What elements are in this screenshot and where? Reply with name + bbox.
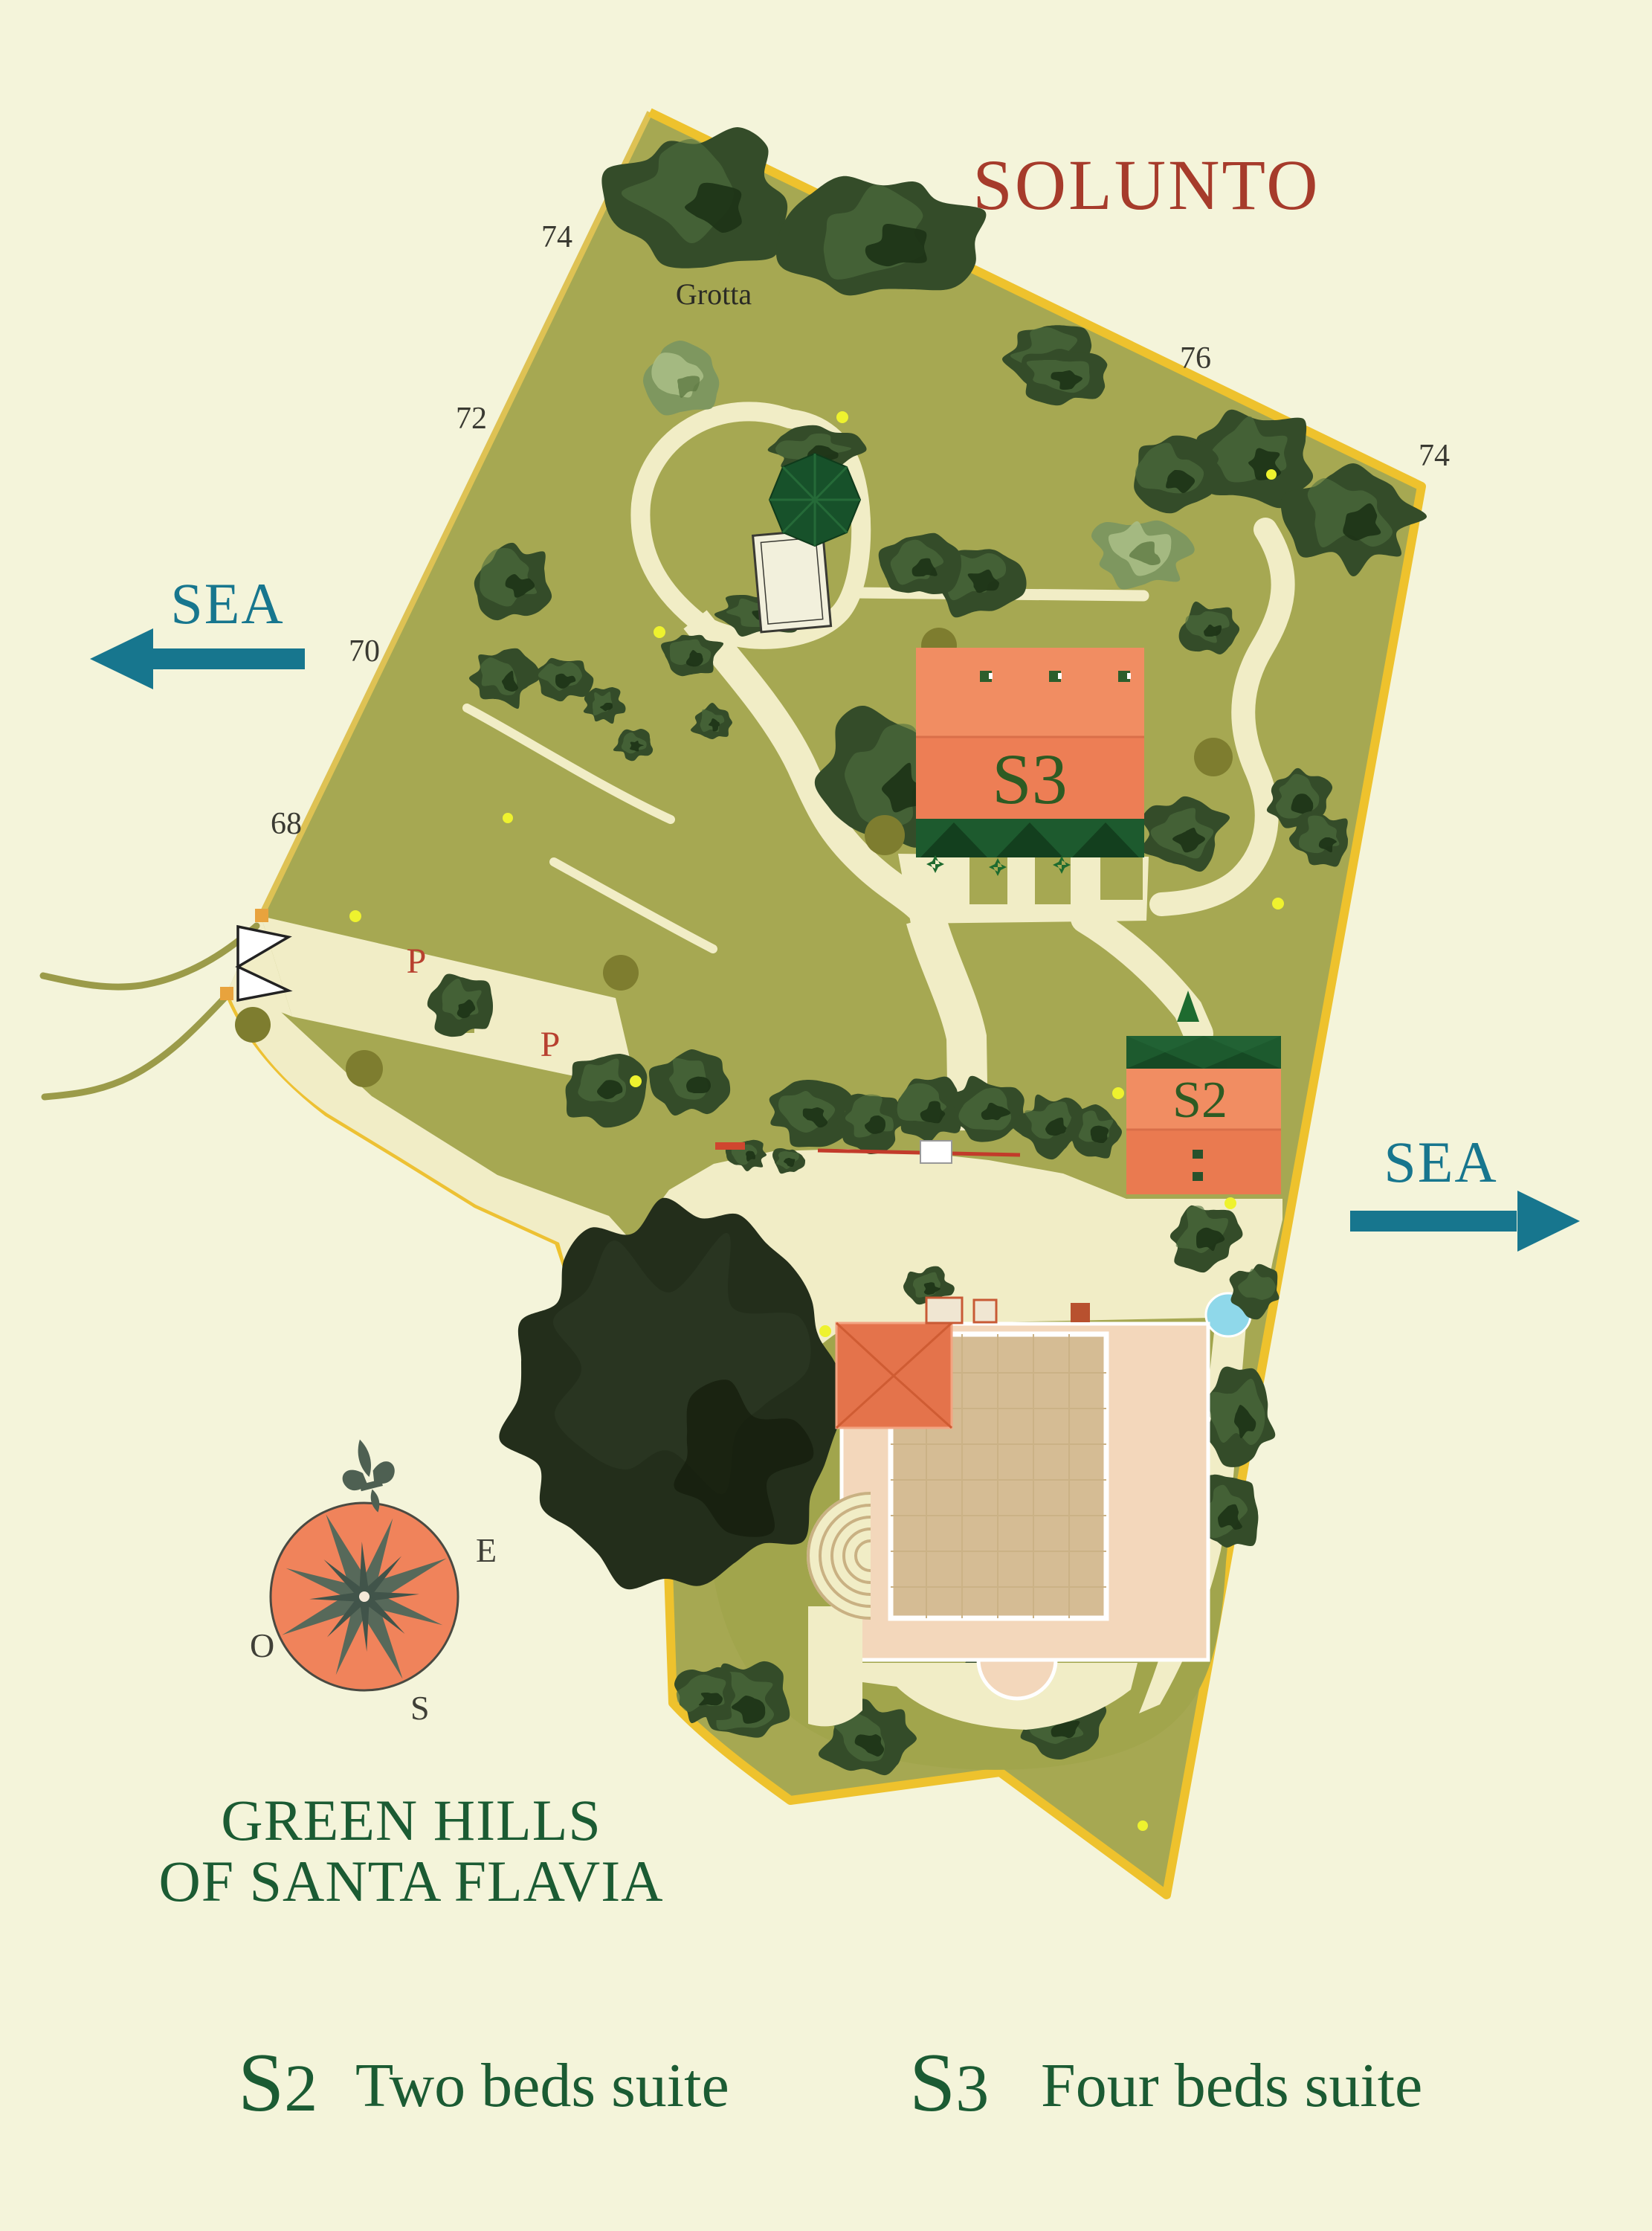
svg-text:S3: S3 — [992, 739, 1067, 819]
svg-text:P: P — [407, 941, 427, 981]
svg-text:76: 76 — [1180, 341, 1211, 376]
svg-text:S2: S2 — [1172, 1072, 1227, 1129]
svg-text:E: E — [476, 1531, 497, 1569]
svg-text:SOLUNTO: SOLUNTO — [972, 145, 1320, 225]
svg-text:72: 72 — [456, 402, 487, 436]
svg-text:70: 70 — [349, 634, 380, 669]
svg-text:SEA: SEA — [170, 571, 284, 636]
svg-text:74: 74 — [1419, 439, 1450, 473]
svg-text:S: S — [410, 1689, 430, 1727]
svg-text:P: P — [541, 1025, 561, 1064]
svg-text:SEA: SEA — [1384, 1130, 1497, 1194]
svg-text:Two beds suite: Two beds suite — [355, 2051, 729, 2120]
svg-text:74: 74 — [541, 220, 572, 254]
svg-text:68: 68 — [271, 807, 302, 841]
svg-text:O: O — [250, 1626, 274, 1664]
svg-text:Grotta: Grotta — [676, 277, 752, 311]
svg-text:OF SANTA FLAVIA: OF SANTA FLAVIA — [158, 1849, 663, 1913]
svg-text:GREEN HILLS: GREEN HILLS — [221, 1788, 601, 1852]
svg-text:Four beds suite: Four beds suite — [1041, 2051, 1422, 2120]
